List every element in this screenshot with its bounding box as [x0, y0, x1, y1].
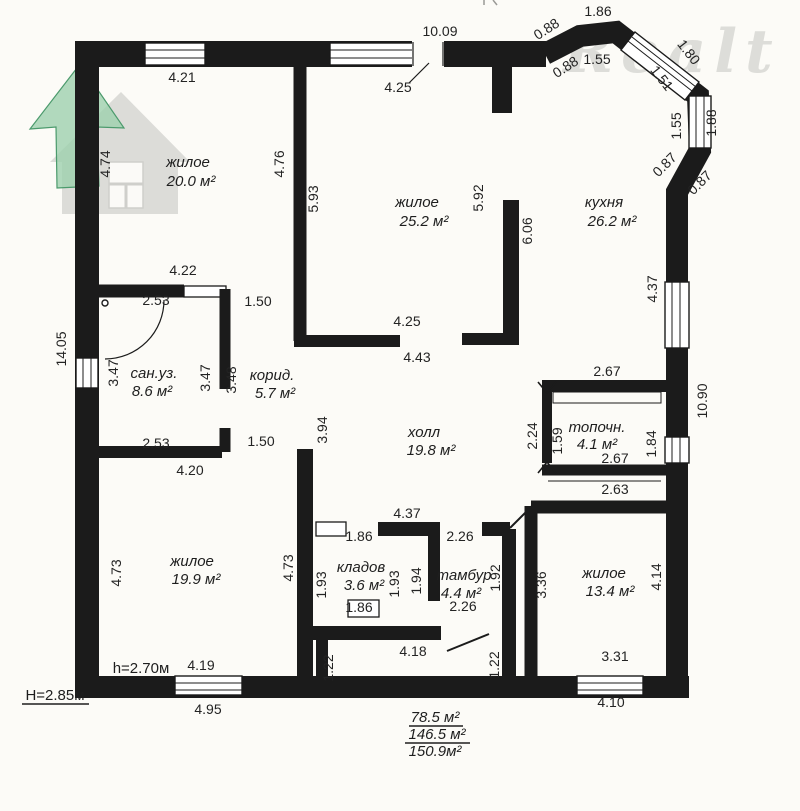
room-name: жилое — [394, 194, 439, 211]
room-name: жилое — [169, 553, 214, 570]
window-frame — [330, 43, 413, 65]
dimension-label: 4.25 — [384, 79, 411, 95]
dimension-label: 1.93 — [313, 571, 329, 598]
dimension-label: 3.47 — [105, 359, 121, 386]
dimension-label: 3.36 — [533, 571, 549, 598]
dimension-label: 3.47 — [197, 364, 213, 391]
dimension-label: 5.92 — [470, 184, 486, 211]
area-total: 150.9м² — [409, 743, 463, 760]
room-area: 3.6 м² — [344, 577, 385, 594]
dimension-label: 4.18 — [399, 643, 426, 659]
window-left — [76, 358, 98, 388]
window-bottom-2 — [577, 676, 643, 695]
dimension-label: 1.94 — [408, 567, 424, 594]
dimension-label: 4.73 — [280, 554, 296, 581]
window-frame — [665, 282, 689, 348]
scan-artifact-tick — [493, 0, 497, 5]
dimension-label: 4.20 — [176, 462, 203, 478]
dimension-label: 1.86 — [345, 528, 372, 544]
room-area: 26.2 м² — [587, 213, 638, 230]
window-frame — [175, 676, 242, 695]
door-swing-arc — [105, 300, 164, 359]
dimension-label: 4.21 — [168, 69, 195, 85]
wall-stub-top — [492, 67, 512, 113]
room-area: 4.1 м² — [577, 436, 618, 453]
scan-artifact — [484, 0, 497, 5]
room-name: кладов — [337, 559, 386, 576]
dimension-label: 10.09 — [422, 23, 457, 39]
room-area: 4.4 м² — [441, 585, 482, 602]
room-area: 19.8 м² — [407, 442, 457, 459]
dimension-label: 1.88 — [703, 109, 719, 136]
window-bottom-1 — [175, 676, 242, 695]
room-area: 20.0 м² — [166, 173, 217, 190]
dimension-label: 6.06 — [519, 217, 535, 244]
dimension-label: 1.55 — [668, 112, 684, 139]
dimension-label: 1.93 — [386, 570, 402, 597]
dimension-label: 3.31 — [601, 648, 628, 664]
window-frame — [145, 43, 205, 65]
room-area: 13.4 м² — [586, 583, 636, 600]
dimension-label: 1.86 — [345, 599, 372, 615]
dimension-label: 1.50 — [247, 433, 274, 449]
dimension-label: 1.84 — [643, 430, 659, 457]
dimension-label: 4.74 — [97, 150, 113, 177]
dimension-label: 4.14 — [648, 563, 664, 590]
window-top-2 — [330, 43, 413, 65]
dimension-label: 2.53 — [142, 292, 169, 308]
dimension-label: 1.50 — [244, 293, 271, 309]
room-area: 5.7 м² — [255, 385, 296, 402]
dimension-label: 4.22 — [169, 262, 196, 278]
dimension-label: 2.24 — [524, 422, 540, 449]
dimension-label: 4.76 — [271, 150, 287, 177]
dimension-label: 10.90 — [694, 383, 710, 418]
dimension-label: 1.55 — [583, 51, 610, 67]
area-total: 146.5 м² — [409, 726, 467, 743]
floor-plan-canvas: Realt — [0, 0, 800, 811]
door-hinge — [102, 300, 108, 306]
area-total: 78.5 м² — [411, 709, 461, 726]
window-right-boiler — [665, 437, 689, 463]
dimension-label: 2.53 — [142, 435, 169, 451]
height-note: h=2.70м — [113, 660, 170, 677]
dimension-label: 4.95 — [194, 701, 221, 717]
room-name: тамбур — [437, 567, 492, 584]
height-note: Н=2.85м — [25, 687, 84, 704]
room-name: холл — [407, 424, 441, 441]
dimension-label: 2.63 — [601, 481, 628, 497]
room-name: жилое — [165, 154, 210, 171]
window-frame — [577, 676, 643, 695]
room-name: топочн. — [569, 419, 626, 436]
dimension-label: 3.48 — [223, 366, 239, 393]
window-right-kitchen — [665, 282, 689, 348]
agency-logo — [30, 64, 190, 214]
dimension-label: 14.05 — [53, 331, 69, 366]
room-area: 25.2 м² — [399, 213, 450, 230]
room-name: кухня — [585, 194, 623, 211]
dimension-label: 2.26 — [446, 528, 473, 544]
room-name: корид. — [250, 367, 295, 384]
dimension-label: 4.37 — [393, 505, 420, 521]
dimension-label: 4.25 — [393, 313, 420, 329]
window-frame — [665, 437, 689, 463]
dimension-label: 1.59 — [549, 427, 565, 454]
room-area: 19.9 м² — [172, 571, 222, 588]
window-top-1 — [145, 43, 205, 65]
dimension-label: 4.10 — [597, 694, 624, 710]
room-name: сан.уз. — [131, 365, 178, 382]
dimension-label: 1.22 — [320, 654, 336, 681]
dimension-label: 4.73 — [108, 559, 124, 586]
dimension-label: 5.93 — [305, 185, 321, 212]
dimension-label: 4.19 — [187, 657, 214, 673]
dimension-label: 1.22 — [486, 651, 502, 678]
floor-plan-page: Realt — [0, 0, 800, 811]
dimension-label: 1.86 — [584, 3, 611, 19]
dimension-label: 2.67 — [593, 363, 620, 379]
dimension-label: 4.37 — [644, 275, 660, 302]
dimension-label: 4.43 — [403, 349, 430, 365]
opening-top — [409, 40, 444, 83]
boiler-duct — [553, 392, 661, 403]
dimension-label: 3.94 — [314, 416, 330, 443]
doorway-pantry-top — [316, 522, 346, 536]
room-name: жилое — [581, 565, 626, 582]
entry-door-leaf — [447, 634, 489, 651]
window-frame — [76, 358, 98, 388]
room-area: 8.6 м² — [132, 383, 173, 400]
